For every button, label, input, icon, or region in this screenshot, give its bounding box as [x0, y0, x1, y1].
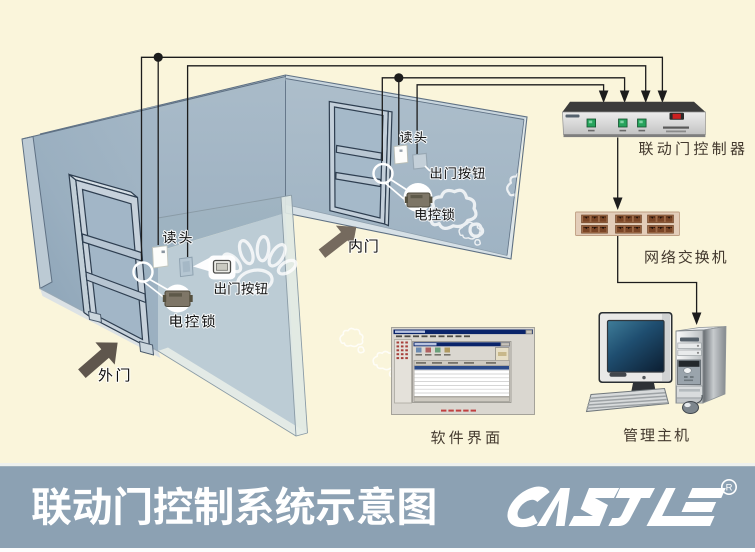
svg-text:R: R	[726, 483, 733, 494]
